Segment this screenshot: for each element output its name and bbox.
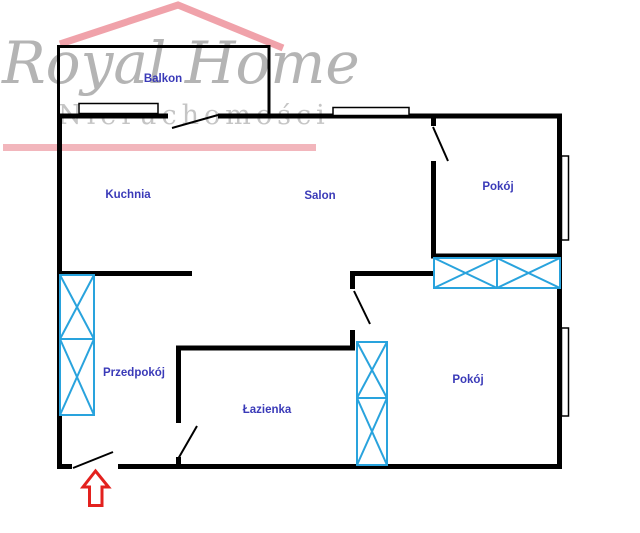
door-leaf [354,291,370,324]
entrance-arrow-icon [83,471,109,506]
wardrobe-hatch [60,275,94,415]
room-label-salon: Salon [304,190,335,202]
hatch-line [357,398,387,465]
window [333,108,409,116]
room-label-kuchnia: Kuchnia [105,189,150,201]
hatch-line [434,258,497,288]
watermark-subtitle-text: Nieruchomości [58,102,330,129]
window [562,156,569,240]
hatch-line [357,342,387,398]
hatch-line [60,339,94,415]
hatch-line [497,258,560,288]
hatch-line [60,275,94,339]
window [562,328,569,416]
door-leaf [178,426,197,459]
room-label-pokoj-bottom: Pokój [452,374,483,386]
wardrobe-fixtures [60,258,560,465]
hatch-line [357,398,387,465]
hatch-line [497,258,560,288]
logo-underline-bar [3,144,316,151]
interior-walls [57,114,560,469]
hatch-line [60,339,94,415]
wardrobe-hatch [357,342,387,465]
room-label-pokoj-top: Pokój [482,181,513,193]
hatch-line [60,275,94,339]
hatch-line [434,258,497,288]
room-label-lazienka: Łazienka [243,404,292,416]
outer-walls [57,114,562,470]
door-leaf [73,452,113,468]
room-label-przedpokoj: Przedpokój [103,367,165,379]
floorplan-canvas: Royal Home Nieruchomości [0,0,640,533]
room-label-balkon: Balkon [144,73,182,85]
door-leaf [433,127,448,161]
hatch-line [357,342,387,398]
wardrobe-hatch [434,258,560,288]
